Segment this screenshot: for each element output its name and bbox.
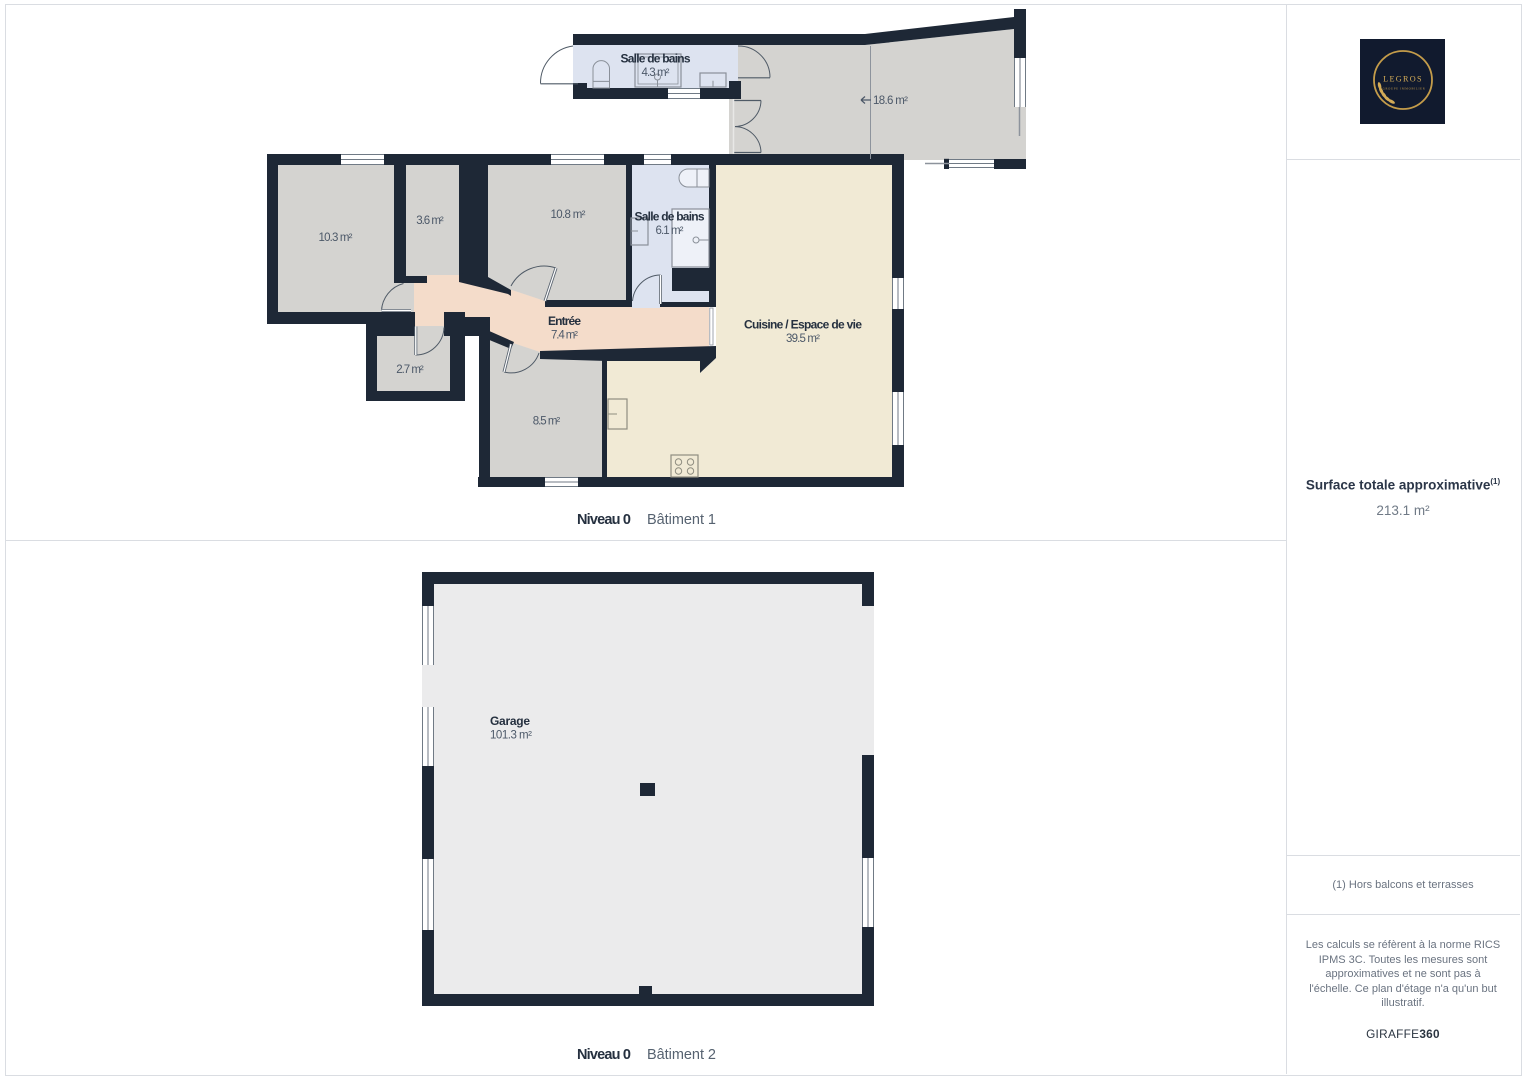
svg-text:39.5 m²: 39.5 m² (786, 333, 820, 345)
svg-text:3.6 m²: 3.6 m² (416, 215, 444, 227)
svg-text:Salle de bains: Salle de bains (621, 52, 691, 66)
svg-text:Bâtiment 1: Bâtiment 1 (647, 512, 716, 528)
svg-text:101.3 m²: 101.3 m² (490, 730, 532, 742)
svg-text:Garage: Garage (490, 714, 530, 728)
svg-text:Niveau 0: Niveau 0 (577, 1047, 631, 1063)
svg-text:Bâtiment 2: Bâtiment 2 (647, 1047, 716, 1063)
svg-text:GROUPE IMMOBILIER: GROUPE IMMOBILIER (1383, 87, 1426, 91)
svg-text:Salle de bains: Salle de bains (635, 210, 705, 224)
svg-text:18.6 m²: 18.6 m² (873, 95, 908, 107)
svg-text:10.8 m²: 10.8 m² (551, 209, 586, 221)
svg-text:4.3 m²: 4.3 m² (642, 67, 670, 79)
svg-text:2.7 m²: 2.7 m² (396, 364, 424, 376)
svg-text:Niveau 0: Niveau 0 (577, 512, 631, 528)
svg-text:Cuisine / Espace de vie: Cuisine / Espace de vie (744, 318, 862, 332)
svg-text:LEGROS: LEGROS (1383, 75, 1423, 84)
svg-text:8.5 m²: 8.5 m² (533, 416, 561, 428)
svg-text:7.4 m²: 7.4 m² (551, 330, 578, 342)
svg-text:6.1 m²: 6.1 m² (656, 225, 684, 237)
svg-text:10.3 m²: 10.3 m² (319, 232, 353, 244)
svg-text:Entrée: Entrée (548, 314, 581, 328)
